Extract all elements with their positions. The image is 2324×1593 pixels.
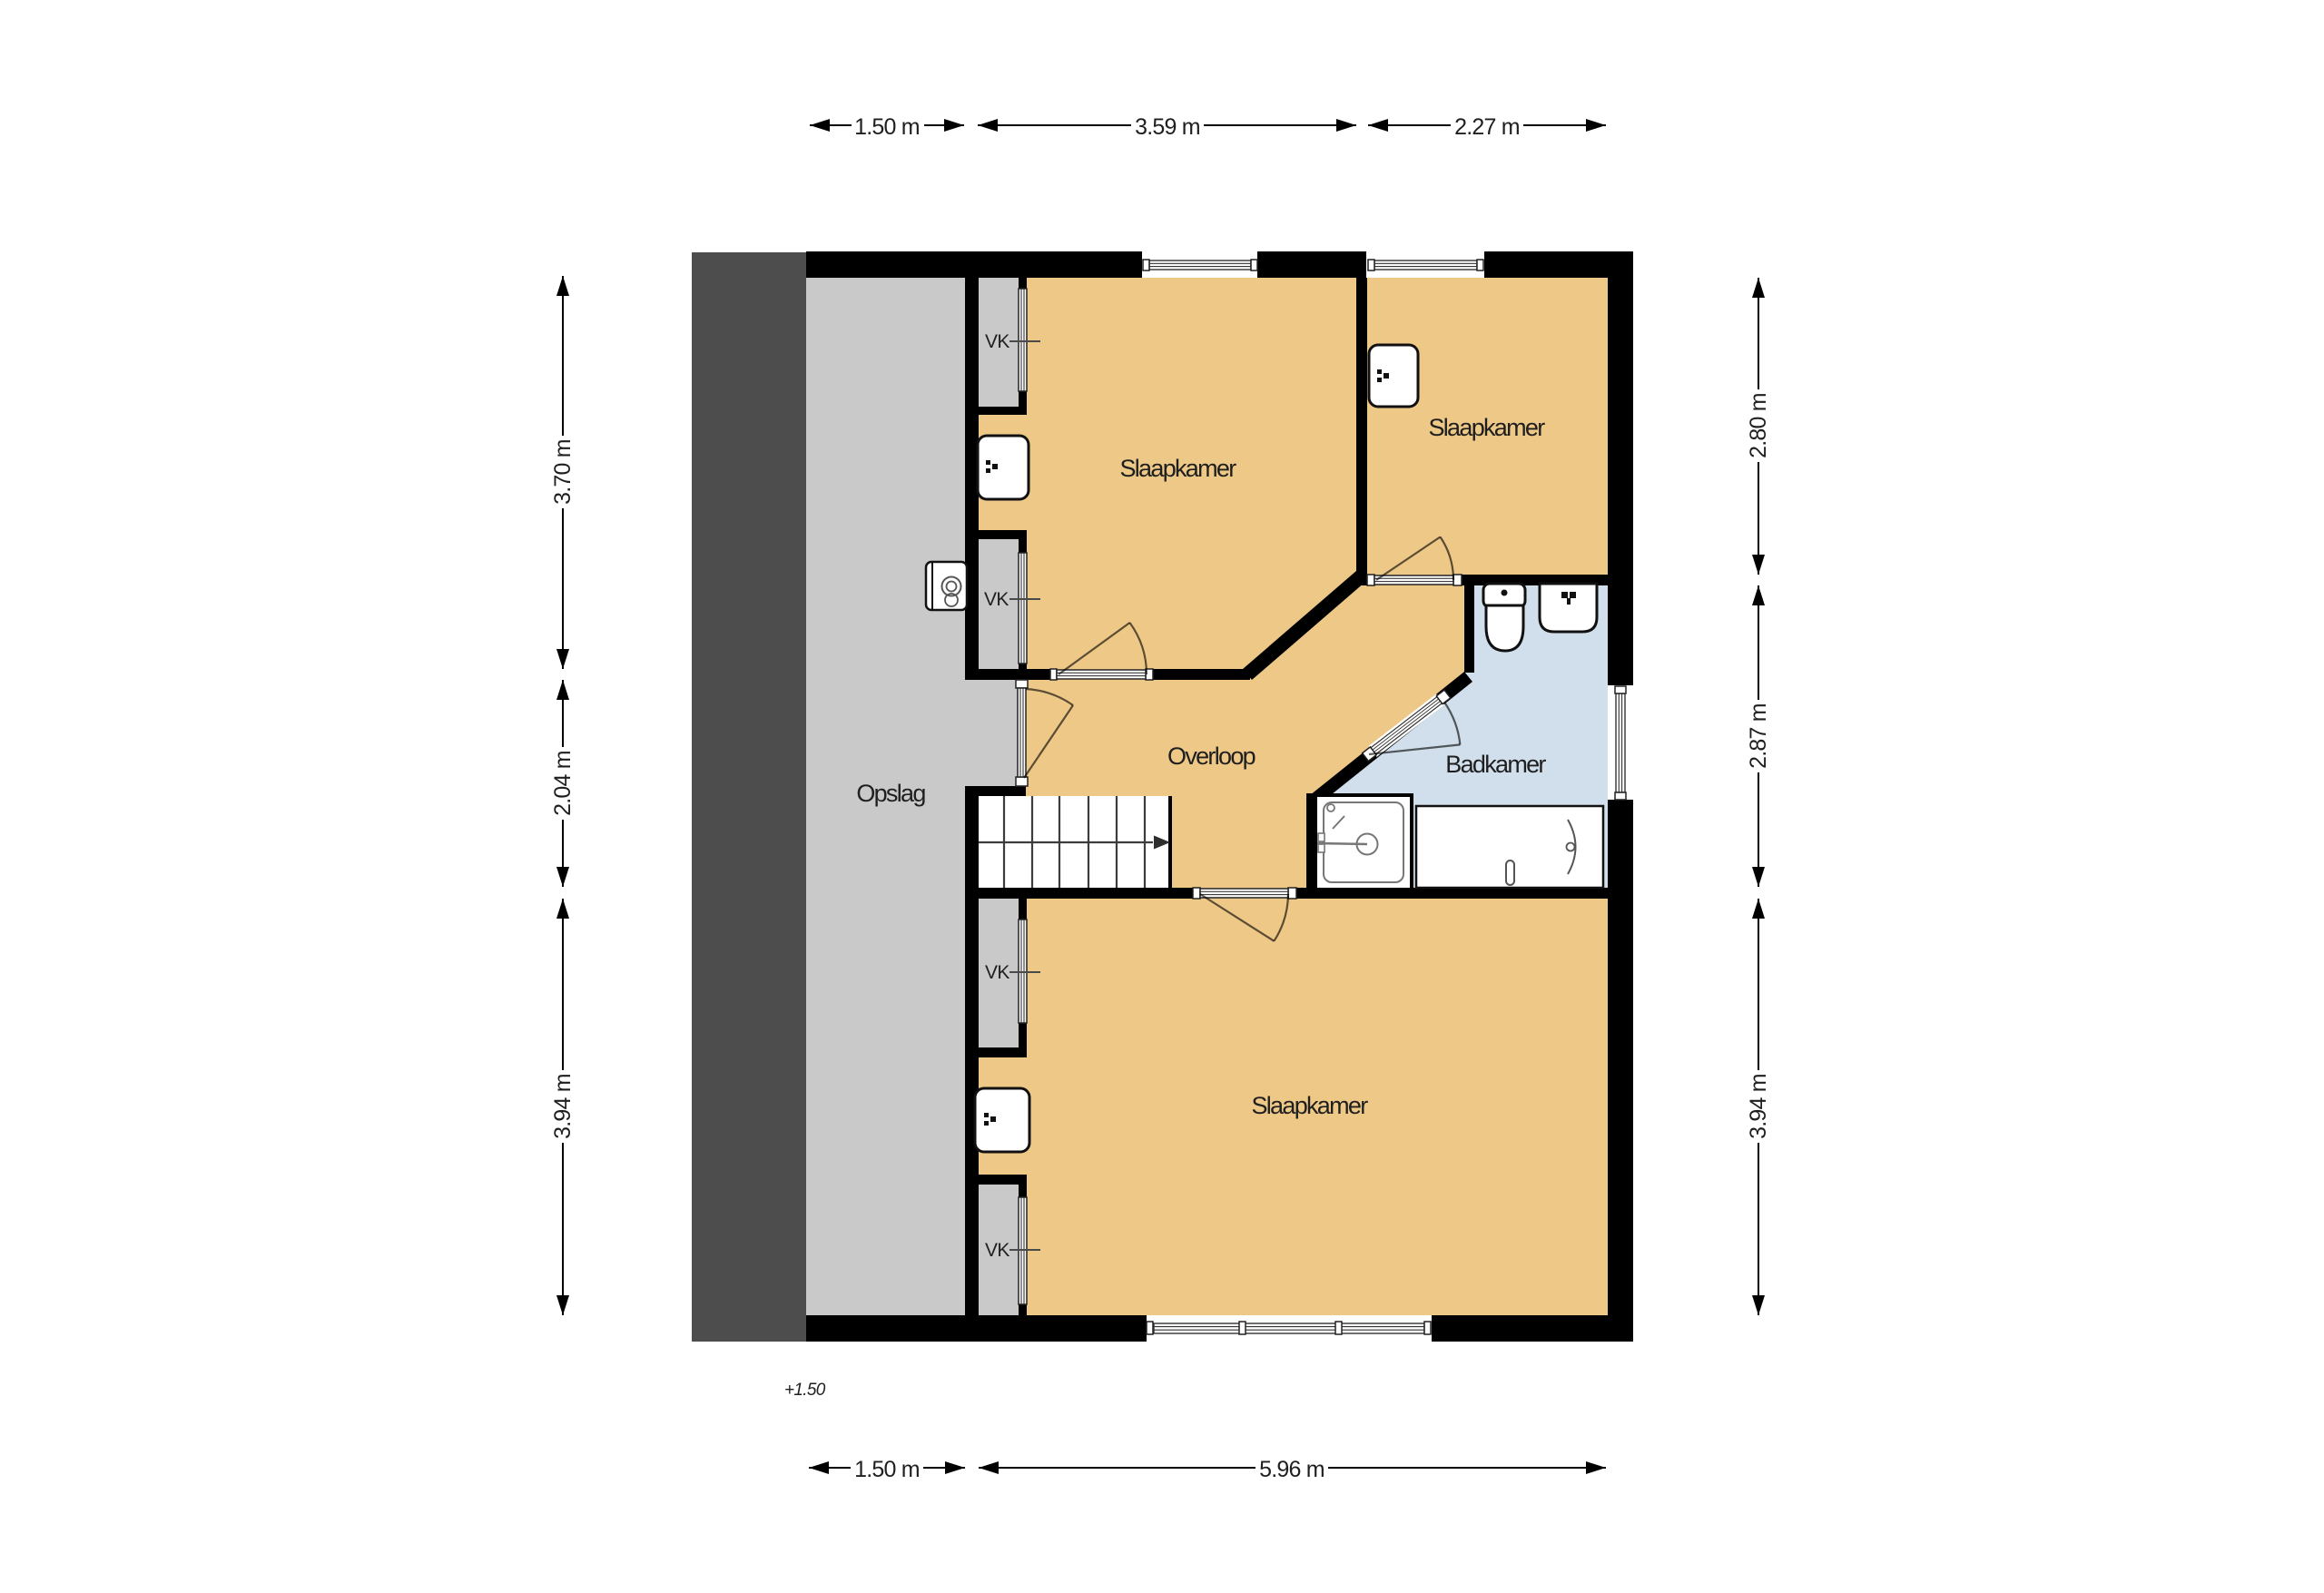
svg-text:3.94 m: 3.94 m (550, 1074, 576, 1139)
svg-text:2.27 m: 2.27 m (1454, 114, 1520, 140)
svg-text:Slaapkamer: Slaapkamer (1119, 455, 1236, 482)
svg-text:3.94 m: 3.94 m (1746, 1074, 1771, 1139)
svg-text:1.50 m: 1.50 m (854, 1457, 920, 1482)
svg-text:2.04 m: 2.04 m (550, 751, 576, 816)
svg-text:VK: VK (984, 589, 1009, 610)
svg-text:VK: VK (985, 1240, 1009, 1261)
svg-text:VK: VK (985, 962, 1009, 983)
svg-text:Slaapkamer: Slaapkamer (1251, 1092, 1368, 1119)
svg-text:3.70 m: 3.70 m (550, 439, 576, 505)
svg-text:Slaapkamer: Slaapkamer (1428, 414, 1545, 441)
svg-text:2.80 m: 2.80 m (1746, 393, 1771, 458)
svg-text:Badkamer: Badkamer (1445, 751, 1546, 778)
svg-text:+1.50: +1.50 (784, 1381, 826, 1400)
svg-text:2.87 m: 2.87 m (1746, 703, 1771, 769)
svg-text:VK: VK (985, 331, 1009, 352)
svg-text:3.59 m: 3.59 m (1135, 114, 1200, 140)
svg-text:1.50 m: 1.50 m (854, 114, 920, 140)
svg-text:Opslag: Opslag (856, 780, 925, 807)
svg-text:Overloop: Overloop (1167, 742, 1256, 770)
svg-text:5.96 m: 5.96 m (1259, 1457, 1324, 1482)
